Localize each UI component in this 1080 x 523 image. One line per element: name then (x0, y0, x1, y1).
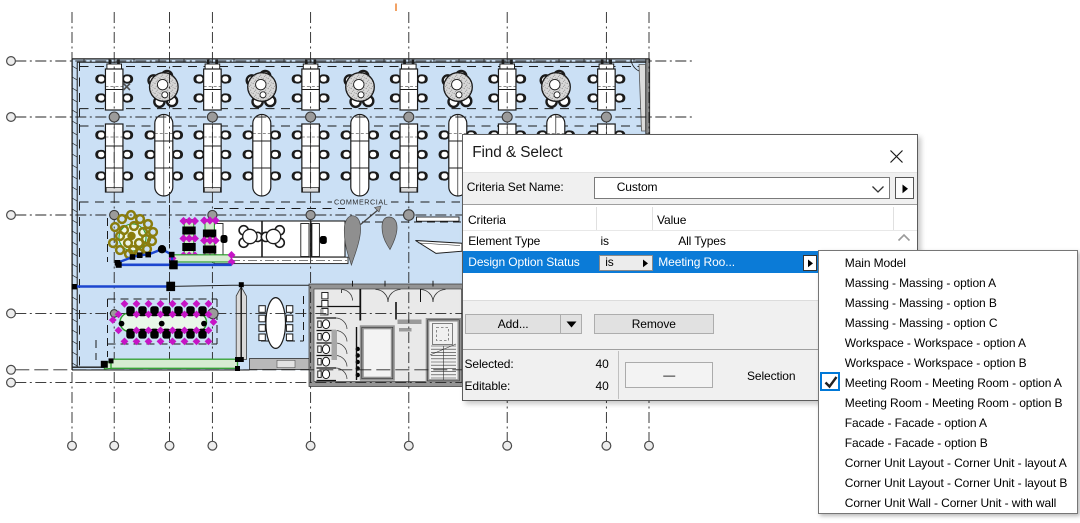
svg-text:COMMERCIAL: COMMERCIAL (334, 197, 388, 206)
